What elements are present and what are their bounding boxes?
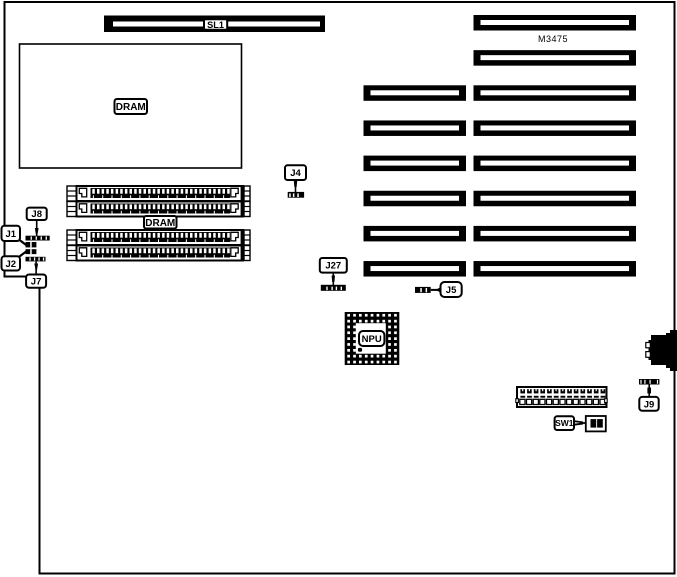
svg-text:NPU: NPU <box>362 334 382 345</box>
svg-text:DRAM: DRAM <box>116 102 146 113</box>
svg-text:SL1: SL1 <box>207 20 224 30</box>
svg-text:J8: J8 <box>31 209 42 220</box>
svg-text:SW1: SW1 <box>555 418 574 428</box>
svg-text:J2: J2 <box>5 259 16 270</box>
svg-text:M3475: M3475 <box>538 34 568 44</box>
svg-text:DRAM: DRAM <box>145 218 175 229</box>
svg-text:J27: J27 <box>325 261 341 272</box>
svg-text:J1: J1 <box>5 229 16 240</box>
svg-text:J5: J5 <box>446 285 457 296</box>
svg-text:J7: J7 <box>31 277 42 288</box>
svg-text:J4: J4 <box>290 168 301 179</box>
svg-text:J9: J9 <box>644 399 655 410</box>
